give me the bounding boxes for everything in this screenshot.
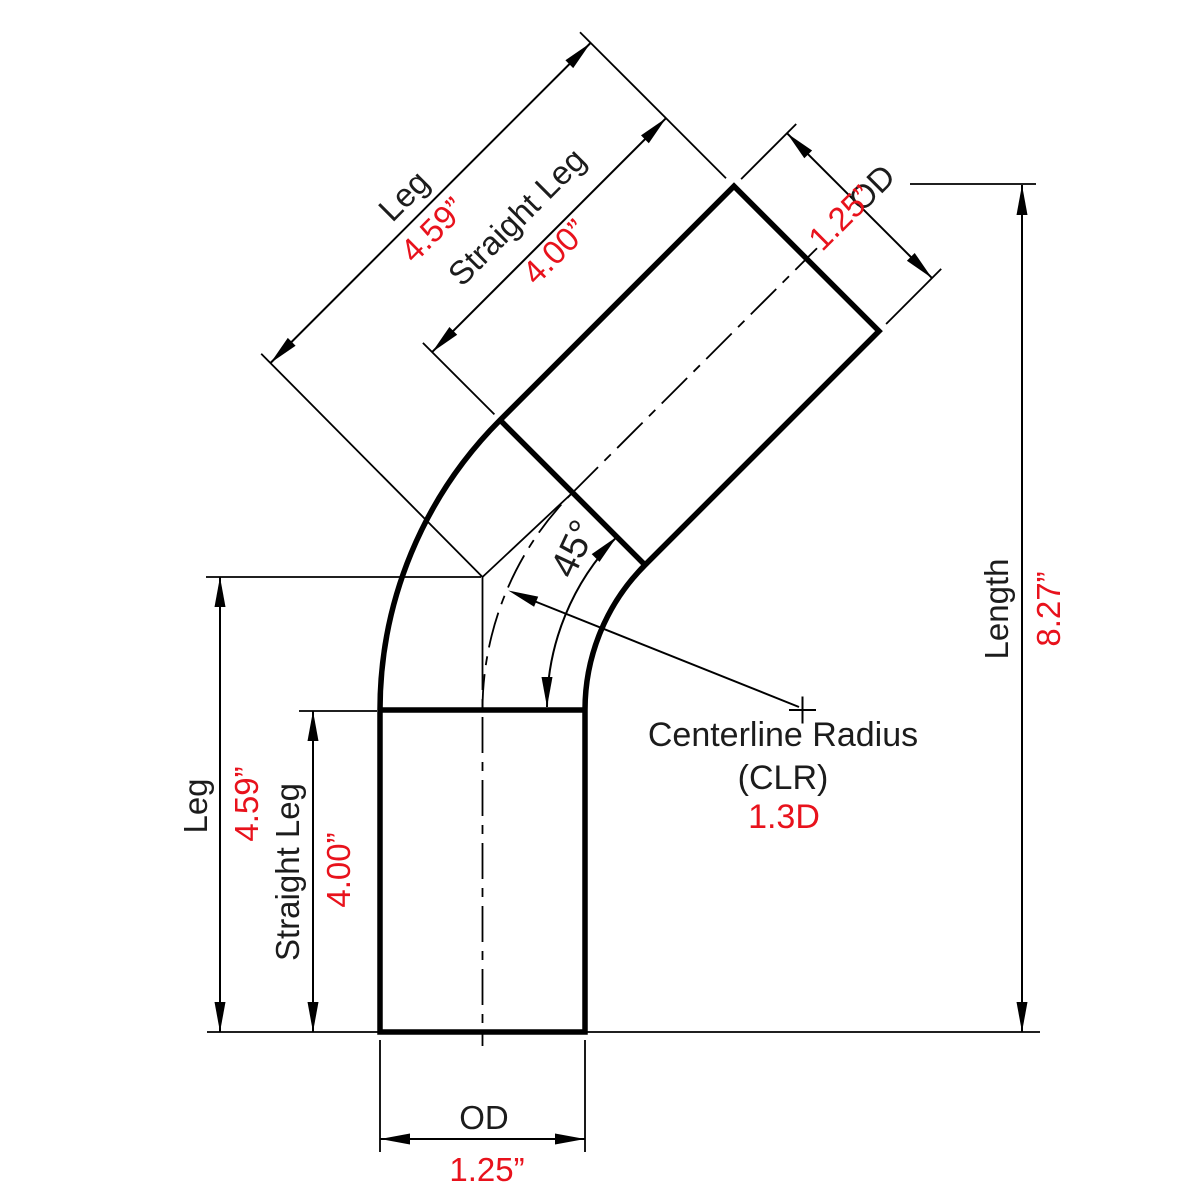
length-label: Length (978, 559, 1015, 660)
arrowhead (308, 711, 319, 741)
arrowhead (555, 1134, 585, 1145)
arrowhead (215, 577, 226, 607)
arrowhead (215, 1002, 226, 1032)
straight-leg-left-label: Straight Leg (269, 783, 306, 961)
straight-leg-left-value: 4.00” (320, 832, 357, 907)
arrowhead (1017, 1002, 1028, 1032)
arrowhead (308, 1002, 319, 1032)
clr-value: 1.3D (748, 798, 820, 836)
clr-label-line2: (CLR) (738, 759, 829, 797)
ext-od-top-left (741, 124, 796, 179)
length-value: 8.27” (1030, 571, 1067, 646)
arrowhead (508, 591, 538, 607)
od-bottom-label: OD (459, 1099, 509, 1136)
bend-diagram: Leg 4.59” Straight Leg 4.00” Length 8.27… (0, 0, 1200, 1200)
arrowhead (380, 1134, 410, 1145)
arrowhead (1017, 185, 1028, 215)
centerline-upper-leg (573, 248, 817, 492)
leg-left-label: Leg (177, 778, 214, 833)
tube (380, 186, 879, 1032)
leg-left-value: 4.59” (228, 766, 265, 841)
clr-label-line1: Centerline Radius (648, 716, 918, 754)
ext-leg-diagonal-apex (261, 354, 482, 577)
arrowhead (542, 677, 553, 707)
tube-outline (380, 186, 879, 1032)
ext-od-top-right (886, 269, 941, 324)
clr-leader-line (534, 601, 799, 707)
ext-cap-corner-upper (580, 32, 726, 178)
bend-angle-value: 45° (543, 514, 605, 584)
ext-weld-corner-upper (423, 343, 495, 415)
od-bottom-value: 1.25” (449, 1151, 524, 1188)
